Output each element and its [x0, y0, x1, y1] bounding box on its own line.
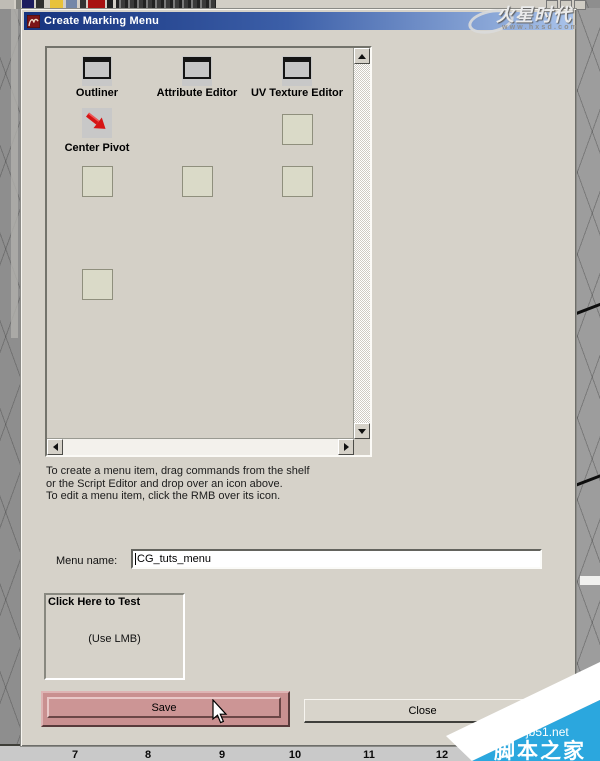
- dialog-title: Create Marking Menu: [44, 15, 159, 27]
- test-marking-menu-area[interactable]: Click Here to Test (Use LMB): [44, 593, 185, 680]
- time-tick: 13: [510, 749, 522, 761]
- test-area-title: Click Here to Test: [48, 596, 140, 608]
- menu-name-value: CG_tuts_menu: [137, 553, 211, 565]
- menu-item-label: UV Texture Editor: [251, 87, 343, 99]
- scroll-down-button[interactable]: [354, 423, 370, 439]
- scrollbar-corner: [354, 439, 370, 455]
- time-tick: 9: [219, 749, 225, 761]
- mouse-cursor-icon: [211, 699, 229, 725]
- menu-item-uv-texture-editor[interactable]: [282, 56, 312, 86]
- panel-edge-highlight: [580, 576, 600, 585]
- close-button[interactable]: Close: [304, 699, 542, 723]
- viewport-edge-line: [576, 298, 600, 317]
- create-marking-menu-dialog: Create Marking Menu Outliner Attribute E…: [20, 8, 577, 747]
- empty-menu-slot[interactable]: [282, 114, 313, 145]
- perspective-viewport-strip: [576, 8, 600, 746]
- time-tick: 10: [289, 749, 301, 761]
- menu-item-label: Outliner: [76, 87, 118, 99]
- viewport-edge-line: [576, 468, 600, 487]
- test-area-hint: (Use LMB): [46, 633, 183, 645]
- time-tick: 7: [72, 749, 78, 761]
- time-tick: 12: [436, 749, 448, 761]
- window-icon: [283, 57, 311, 79]
- instructions-text: To create a menu item, drag commands fro…: [46, 465, 310, 503]
- time-tick: 14: [583, 749, 595, 761]
- empty-menu-slot[interactable]: [82, 269, 113, 300]
- red-arrow-icon: [82, 108, 112, 138]
- save-button[interactable]: Save: [47, 697, 281, 718]
- scroll-right-button[interactable]: [338, 439, 354, 455]
- time-tick: 8: [145, 749, 151, 761]
- menu-item-label: Center Pivot: [65, 142, 130, 154]
- instructions-line: To create a menu item, drag commands fro…: [46, 465, 310, 478]
- grid-panel-content: Outliner Attribute Editor UV Texture Edi…: [47, 48, 354, 439]
- marking-menu-grid-panel: Outliner Attribute Editor UV Texture Edi…: [45, 46, 372, 457]
- maya-app-icon: [27, 15, 40, 28]
- toolbox-edge: [11, 8, 18, 338]
- menu-item-outliner[interactable]: [82, 56, 112, 86]
- vertical-scrollbar[interactable]: [353, 48, 370, 439]
- text-caret: [135, 553, 136, 565]
- empty-menu-slot[interactable]: [182, 166, 213, 197]
- empty-menu-slot[interactable]: [282, 166, 313, 197]
- menu-item-attribute-editor[interactable]: [182, 56, 212, 86]
- horizontal-scrollbar[interactable]: [47, 438, 354, 455]
- time-tick: 11: [363, 749, 375, 761]
- instructions-line: To edit a menu item, click the RMB over …: [46, 490, 310, 503]
- dialog-titlebar[interactable]: Create Marking Menu: [24, 12, 573, 30]
- instructions-line: or the Script Editor and drop over an ic…: [46, 478, 310, 491]
- scroll-up-button[interactable]: [354, 48, 370, 64]
- window-icon: [83, 57, 111, 79]
- empty-menu-slot[interactable]: [82, 166, 113, 197]
- menu-item-label: Attribute Editor: [157, 87, 238, 99]
- menu-name-input[interactable]: CG_tuts_menu: [131, 549, 542, 569]
- scroll-left-button[interactable]: [47, 439, 63, 455]
- window-icon: [183, 57, 211, 79]
- menu-item-center-pivot[interactable]: [82, 108, 112, 138]
- save-button-frame: Save: [41, 691, 290, 727]
- menu-name-label: Menu name:: [56, 555, 117, 567]
